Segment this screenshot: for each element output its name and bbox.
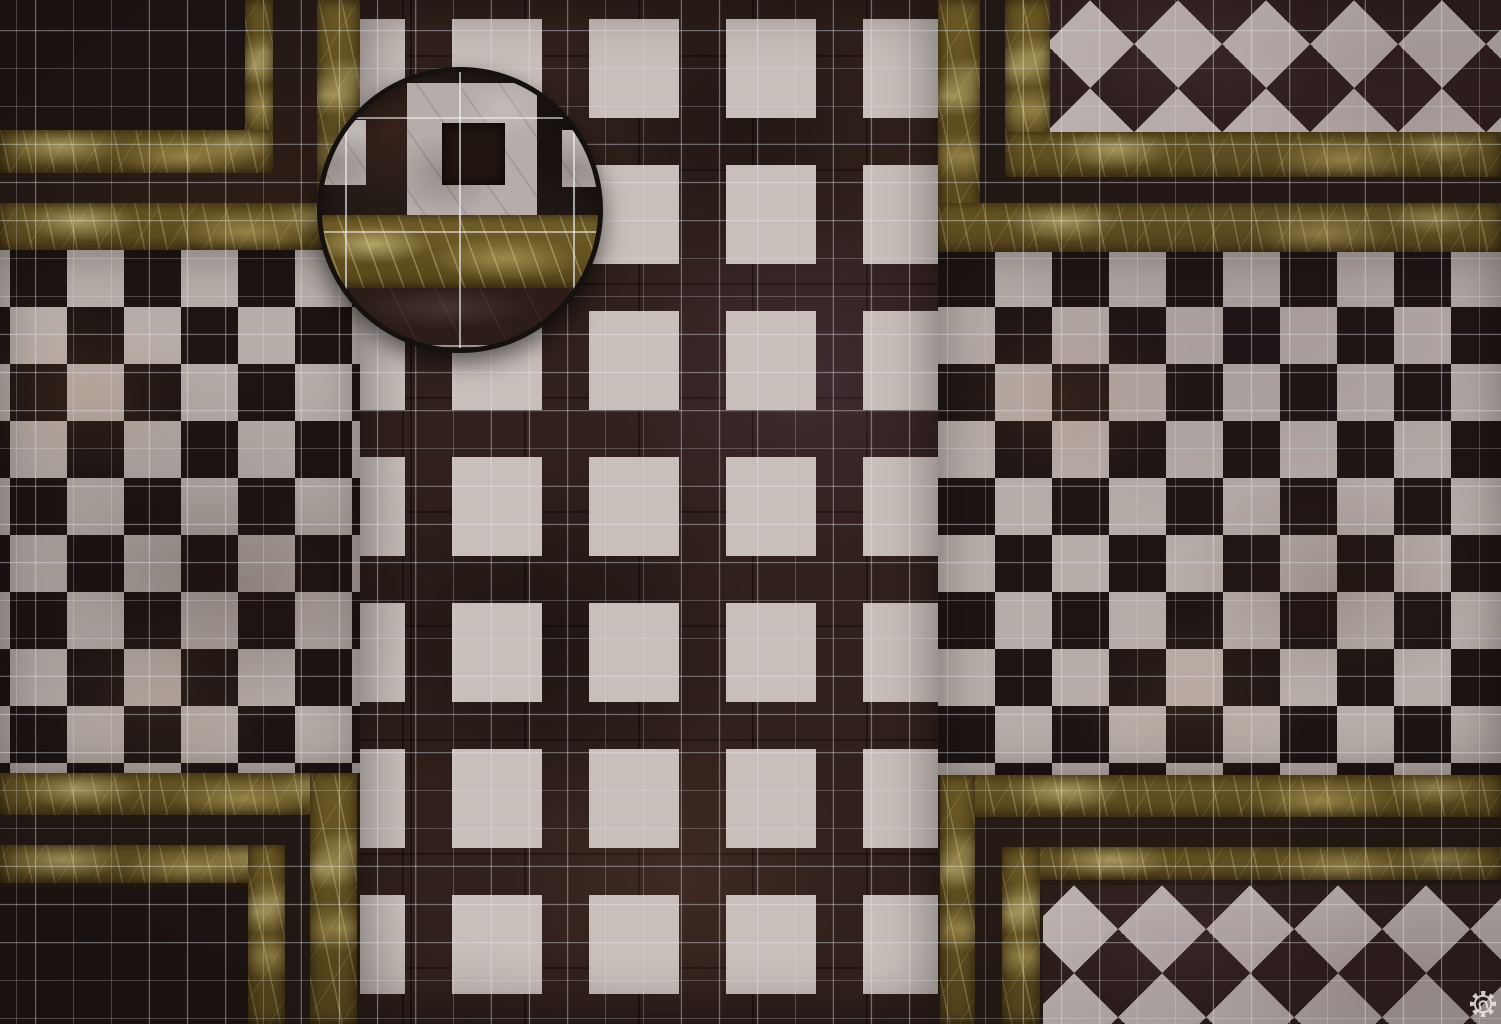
diamond-checker-panel-bottom-right: [1043, 885, 1501, 1024]
gold-border-band: [1002, 847, 1501, 880]
gold-border-band: [0, 130, 273, 173]
gold-border-band: [0, 845, 285, 883]
magnified-grid-lines: [322, 72, 598, 348]
publisher-logo-gear-icon: [1466, 987, 1499, 1020]
diamond-checker-panel-top-right: [1050, 0, 1501, 132]
gold-border-band: [940, 775, 975, 1024]
checkerboard-floor-right: [938, 250, 1501, 775]
gold-border-band: [248, 845, 285, 1024]
gold-border-band: [0, 773, 357, 815]
square-motif-panel-top-left: [0, 0, 245, 132]
magnifier-circle-inset: [317, 67, 603, 353]
gold-border-band: [310, 773, 357, 1024]
gold-border-band: [940, 775, 1501, 817]
gold-border-band: [0, 203, 360, 250]
gold-border-band: [1002, 847, 1040, 1024]
square-motif-panel-bottom-left: [0, 887, 248, 1024]
battle-map: [0, 0, 1501, 1024]
gold-border-band: [938, 203, 1501, 252]
gold-border-band: [1005, 132, 1501, 177]
checkerboard-floor-left: [0, 250, 360, 773]
